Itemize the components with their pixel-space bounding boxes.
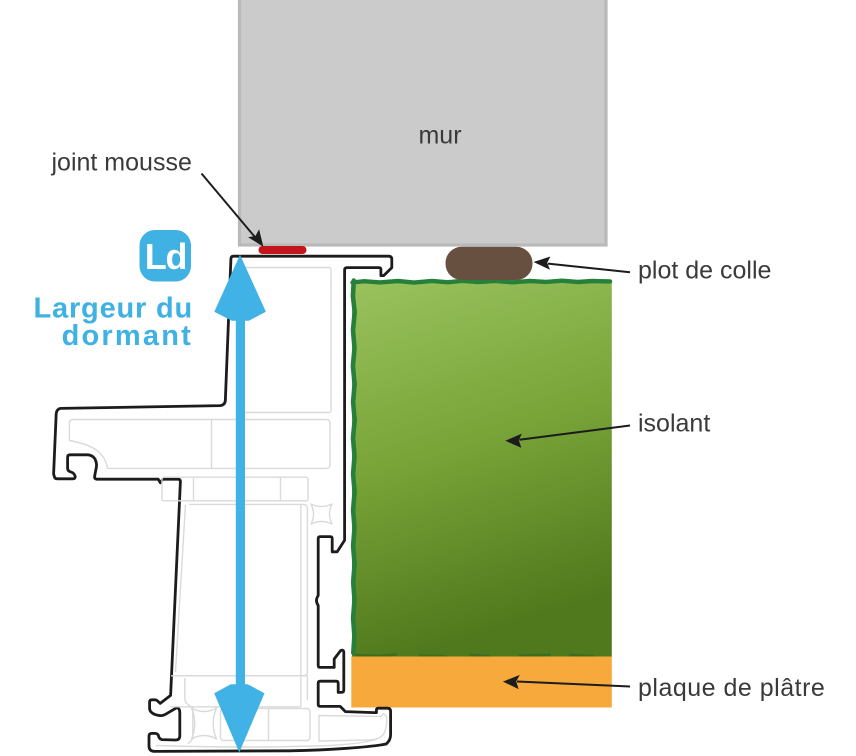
svg-text:isolant: isolant — [638, 410, 710, 438]
svg-text:plaque de plâtre: plaque de plâtre — [638, 674, 825, 702]
svg-text:joint mousse: joint mousse — [51, 149, 192, 177]
svg-text:plot de colle: plot de colle — [638, 257, 771, 285]
svg-text:mur: mur — [418, 122, 461, 150]
svg-text:dormant: dormant — [62, 320, 193, 352]
svg-text:Ld: Ld — [145, 236, 187, 277]
